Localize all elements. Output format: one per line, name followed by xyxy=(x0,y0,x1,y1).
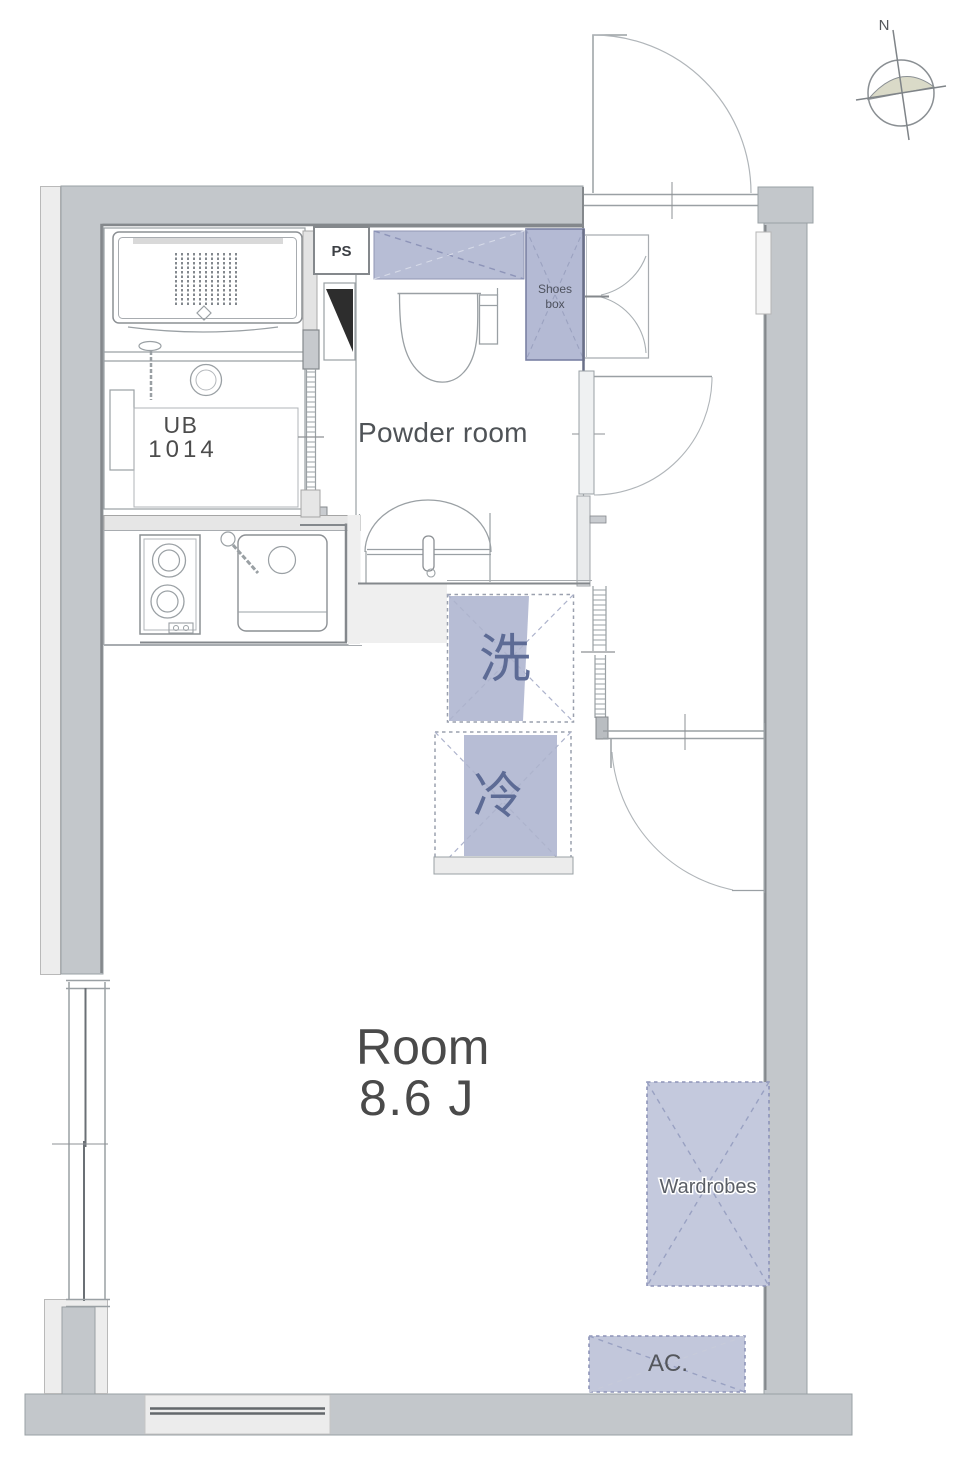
svg-text:1014: 1014 xyxy=(148,436,217,463)
svg-text:Wardrobes: Wardrobes xyxy=(659,1176,756,1198)
svg-text:N: N xyxy=(879,17,890,34)
svg-text:Shoes: Shoes xyxy=(538,282,572,296)
svg-text:8.6 J: 8.6 J xyxy=(359,1070,475,1126)
svg-text:Room: Room xyxy=(356,1019,489,1075)
svg-text:box: box xyxy=(545,297,564,311)
svg-text:PS: PS xyxy=(331,243,351,260)
svg-text:Powder room: Powder room xyxy=(358,417,528,448)
svg-text:AC.: AC. xyxy=(648,1350,688,1377)
svg-text:洗: 洗 xyxy=(479,631,531,689)
svg-text:UB: UB xyxy=(164,412,199,438)
svg-text:冷: 冷 xyxy=(473,768,523,824)
